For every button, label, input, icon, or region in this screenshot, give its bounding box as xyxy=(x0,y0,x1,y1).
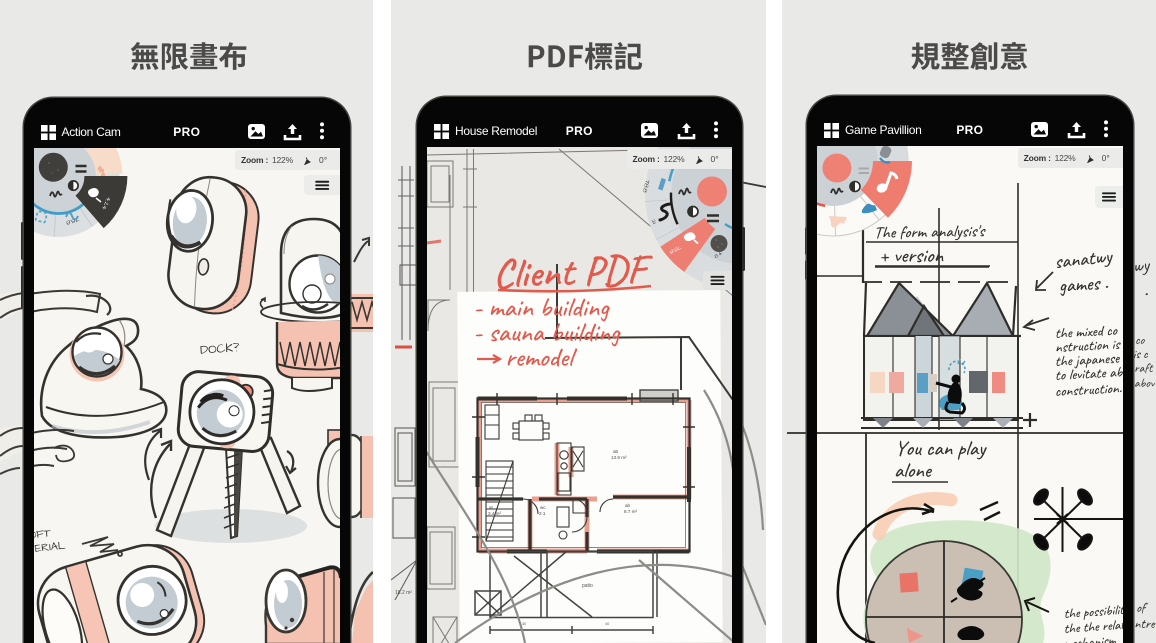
svg-text:3.4 m²: 3.4 m² xyxy=(488,511,501,516)
svg-text:ab: ab xyxy=(625,503,631,508)
svg-text:13.9 m²: 13.9 m² xyxy=(611,455,627,460)
svg-text:ab: ab xyxy=(613,449,619,454)
svg-text:30: 30 xyxy=(522,622,526,626)
svg-text:8.7 m²: 8.7 m² xyxy=(624,509,637,514)
svg-text:40: 40 xyxy=(605,622,609,626)
svg-text:18.2 m²: 18.2 m² xyxy=(395,590,412,596)
svg-text:patio: patio xyxy=(582,583,593,589)
svg-text:2.1: 2.1 xyxy=(539,511,546,516)
svg-text:wc: wc xyxy=(540,505,546,510)
